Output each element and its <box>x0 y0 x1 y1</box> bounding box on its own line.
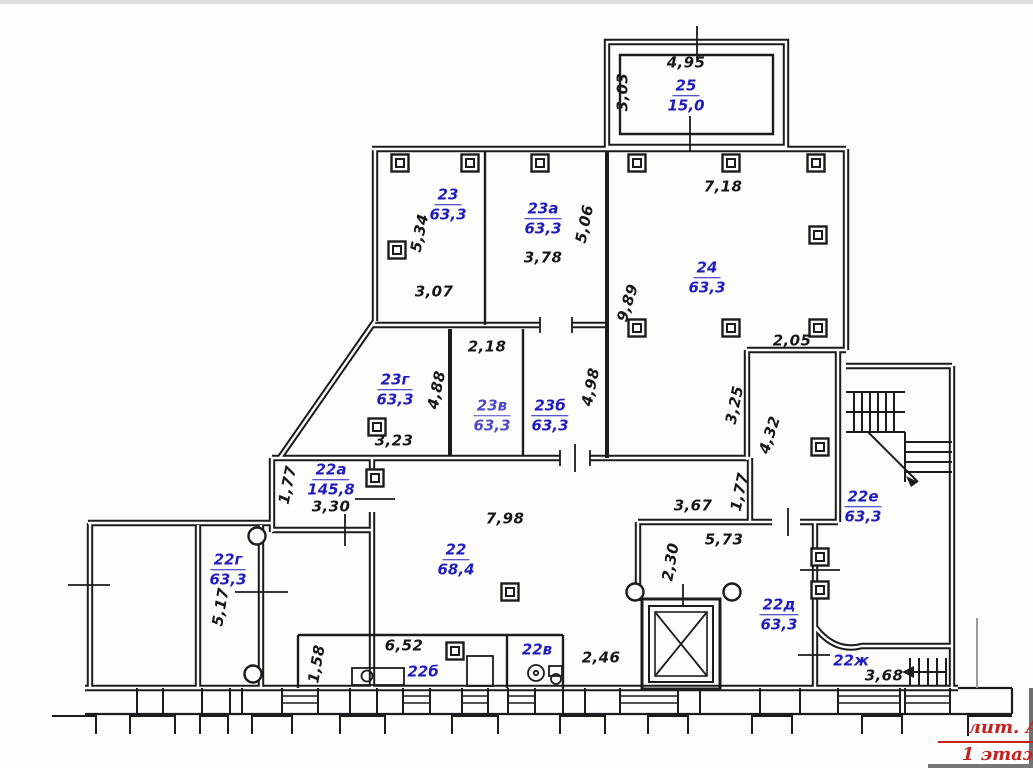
counter <box>352 668 404 685</box>
room-label-24: 2463,3 <box>688 259 725 297</box>
toilet-icon <box>528 665 544 681</box>
litera-annotation: лит. А 1 этаж <box>938 717 1033 766</box>
dimension-label: 7,98 <box>486 512 525 527</box>
dimension-label: 3,68 <box>865 669 904 684</box>
dimension-label: 5,73 <box>705 533 744 548</box>
room-label-22: 2268,4 <box>437 541 474 579</box>
room-label-22g: 22г63,3 <box>209 551 246 589</box>
room-label-23v: 23в63,3 <box>473 397 510 435</box>
elevator-shaft <box>642 599 720 689</box>
room-label-22zh: 22ж <box>833 652 869 669</box>
room-label-23a: 23а63,3 <box>524 200 561 238</box>
floor-plan-drawing <box>0 0 1033 768</box>
room-label-25: 2515,0 <box>667 77 704 115</box>
entrance-steps <box>52 716 1012 736</box>
room-label-22b: 22б <box>407 663 438 680</box>
scan-edges <box>0 0 1033 768</box>
dimension-label: 3,67 <box>674 499 713 514</box>
dimension-label: 2,18 <box>468 340 507 355</box>
room-label-23b: 23б63,3 <box>531 397 568 435</box>
dimension-label: 3,78 <box>524 251 563 266</box>
cabinet <box>467 656 493 686</box>
dimension-label: 7,18 <box>704 180 743 195</box>
stair-arrow-icon <box>902 666 914 678</box>
dimension-label: 2,05 <box>773 334 812 349</box>
room-label-22e: 22е63,3 <box>844 488 881 526</box>
room-label-23: 2363,3 <box>429 186 466 224</box>
dimension-label: 3,07 <box>415 285 454 300</box>
dimension-label: 2,46 <box>582 651 621 666</box>
dimension-label: 6,52 <box>385 639 424 654</box>
room-label-23g: 23г63,3 <box>376 371 413 409</box>
room-label-22v: 22в <box>522 641 552 658</box>
staircase <box>846 392 952 686</box>
litera-text: лит. А <box>938 717 1033 743</box>
dimension-label: 4,95 <box>667 56 706 71</box>
floor-text: 1 этаж <box>938 743 1033 767</box>
room-label-22d: 22д63,3 <box>760 596 799 634</box>
floor-plan-page: { "document": { "type": "floor plan scan… <box>0 0 1033 768</box>
facade-band <box>52 688 1012 736</box>
dimension-label: 3,23 <box>375 434 414 449</box>
dimension-label: 3,03 <box>616 73 631 112</box>
room-label-22a: 22а145,8 <box>307 461 354 499</box>
dimension-label: 3,30 <box>312 500 351 515</box>
stair-arrow-icon <box>906 476 918 487</box>
